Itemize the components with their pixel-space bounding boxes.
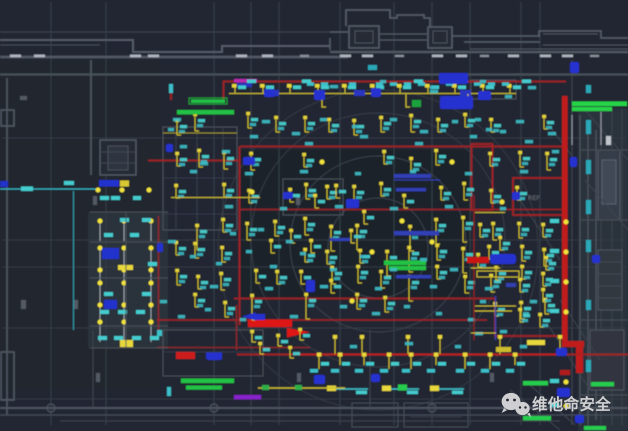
svg-text:REF: REF xyxy=(528,196,540,202)
svg-text:维他命安全: 维他命安全 xyxy=(532,395,611,414)
